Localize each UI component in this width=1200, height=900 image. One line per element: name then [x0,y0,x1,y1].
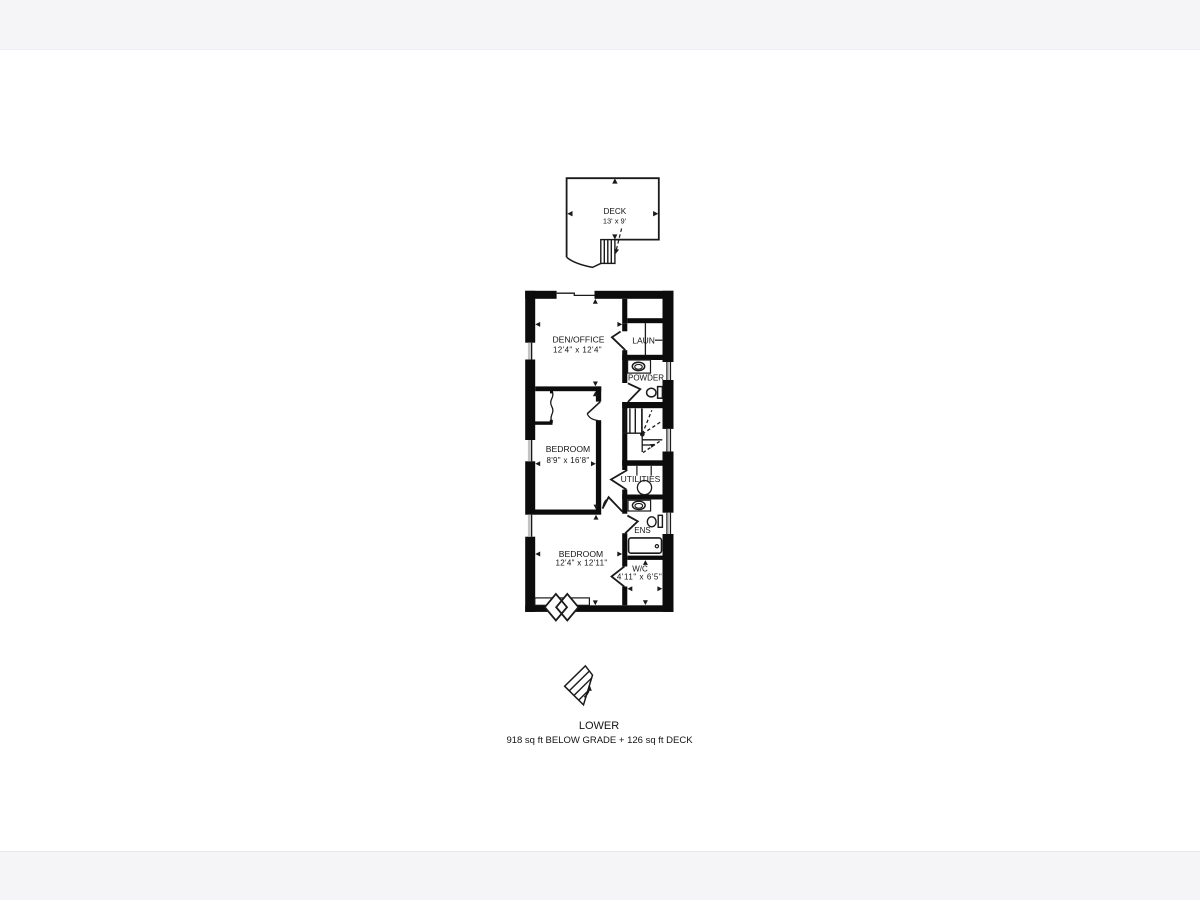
svg-text:12'4" x 12'4": 12'4" x 12'4" [553,346,602,355]
svg-text:DECK: DECK [604,207,627,216]
svg-text:13' x 9': 13' x 9' [603,217,627,226]
svg-text:DEN/OFFICE: DEN/OFFICE [552,335,604,345]
svg-text:BEDROOM: BEDROOM [546,444,590,454]
svg-text:UTILITIES: UTILITIES [621,474,661,484]
svg-text:4'11" x 6'5": 4'11" x 6'5" [617,573,662,582]
svg-text:8'9" x 16'8": 8'9" x 16'8" [546,456,589,465]
svg-text:12'4" x 12'11": 12'4" x 12'11" [556,559,608,568]
svg-text:ENS: ENS [634,526,650,535]
svg-text:LOWER: LOWER [579,720,619,732]
svg-text:918 sq ft BELOW GRADE + 126 sq: 918 sq ft BELOW GRADE + 126 sq ft DECK [506,735,693,746]
svg-text:LAUN: LAUN [632,335,655,345]
svg-text:BEDROOM: BEDROOM [559,549,603,559]
svg-text:POWDER: POWDER [628,373,664,382]
